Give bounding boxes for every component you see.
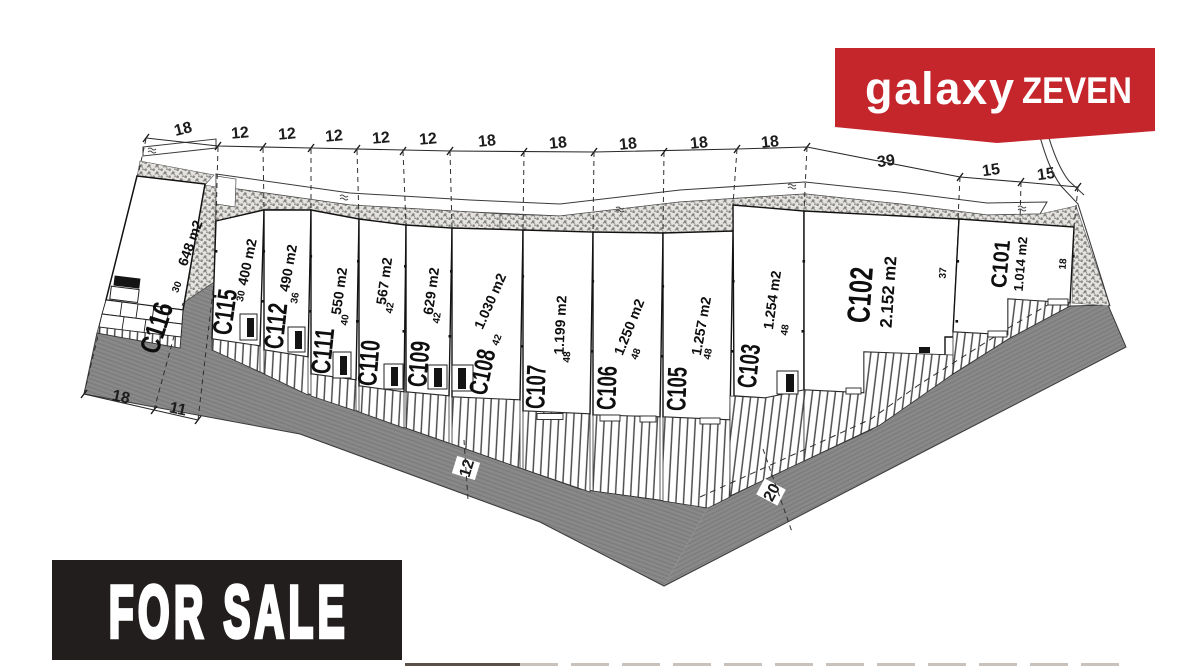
svg-text:15: 15 [981, 161, 1001, 180]
svg-text:18: 18 [1058, 258, 1070, 270]
svg-text:12: 12 [277, 125, 296, 143]
svg-text:C102: C102 [840, 266, 880, 324]
svg-text:C107: C107 [520, 364, 552, 409]
svg-text:12: 12 [324, 127, 343, 145]
svg-text:C103: C103 [732, 343, 766, 390]
svg-text:15: 15 [1036, 165, 1056, 184]
svg-text:18: 18 [110, 387, 131, 407]
svg-text:39: 39 [876, 152, 896, 171]
svg-text:40: 40 [339, 313, 352, 326]
svg-text:12: 12 [371, 129, 390, 147]
svg-text:18: 18 [689, 134, 709, 153]
svg-text:18: 18 [477, 132, 497, 151]
svg-text:C109: C109 [402, 340, 436, 388]
svg-text:1.199 m2: 1.199 m2 [550, 295, 569, 355]
svg-text:18: 18 [548, 134, 568, 153]
svg-text:C105: C105 [661, 366, 693, 411]
svg-text:11: 11 [168, 399, 188, 419]
svg-text:18: 18 [618, 135, 638, 154]
svg-text:42: 42 [384, 301, 397, 314]
svg-text:12: 12 [418, 130, 437, 148]
svg-text:37: 37 [938, 267, 950, 279]
svg-text:42: 42 [431, 311, 444, 324]
svg-text:48: 48 [779, 323, 792, 336]
svg-text:C106: C106 [591, 365, 623, 410]
svg-text:ZEVEN: ZEVEN [1022, 70, 1132, 111]
svg-text:galaxy: galaxy [865, 63, 1014, 114]
svg-text:C110: C110 [352, 339, 386, 387]
svg-text:C111: C111 [306, 327, 341, 376]
svg-text:FOR SALE: FOR SALE [109, 571, 349, 653]
svg-text:18: 18 [760, 133, 780, 152]
svg-text:12: 12 [230, 124, 249, 142]
svg-text:48: 48 [562, 351, 574, 363]
svg-text:C112: C112 [259, 302, 294, 351]
